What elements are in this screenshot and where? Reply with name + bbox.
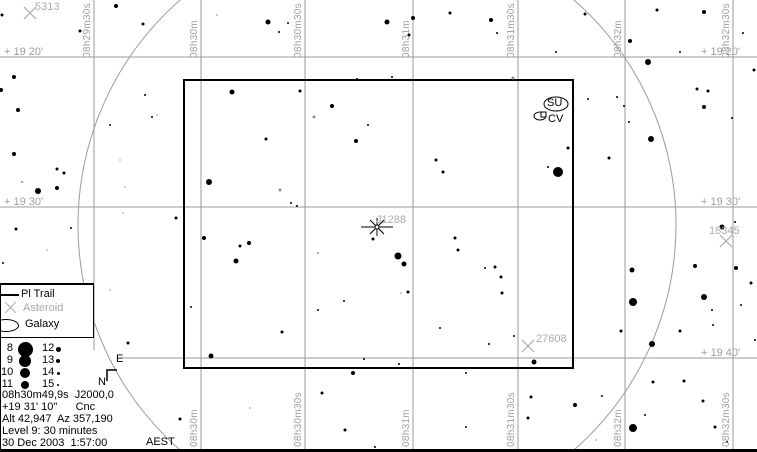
info-panel: 08h30m49,9s J2000,0+19 31' 10" CncAlt 42… bbox=[2, 389, 114, 449]
magnitude-dot-icon bbox=[57, 384, 59, 386]
asteroid-label: 18345 bbox=[709, 225, 740, 237]
magnitude-scale: 89101112131415 bbox=[0, 337, 70, 392]
compass-east-label: E bbox=[116, 353, 123, 365]
ra-label-bottom: 08h32m bbox=[613, 409, 624, 447]
magnitude-value: 12 bbox=[42, 342, 54, 354]
info-line: Alt 42,947 Az 357,190 bbox=[2, 413, 114, 425]
window-left-border bbox=[0, 283, 1, 452]
legend-label: Galaxy bbox=[25, 318, 59, 330]
magnitude-value: 13 bbox=[42, 354, 54, 366]
legend-box: Pl Trail Asteroid Galaxy bbox=[0, 283, 94, 338]
magnitude-dot-icon bbox=[21, 381, 29, 389]
center-marker-label: J1288 bbox=[376, 214, 406, 226]
ra-label-top: 08h31m30s bbox=[506, 3, 517, 58]
asteroid-icon bbox=[4, 302, 16, 314]
info-line: Level 9: 30 minutes bbox=[2, 425, 114, 437]
info-line: 30 Dec 2003 1:57:00 bbox=[2, 437, 114, 449]
magnitude-dot-icon bbox=[19, 355, 31, 367]
dec-label-right: + 19 30' bbox=[701, 196, 740, 208]
magnitude-value: 10 bbox=[1, 366, 13, 378]
ra-label-bottom: 08h32m30s bbox=[721, 392, 732, 447]
ra-label-bottom: 08h31m bbox=[401, 409, 412, 447]
magnitude-dot-icon bbox=[20, 368, 30, 378]
dec-label-left: + 19 30' bbox=[4, 196, 43, 208]
galaxy-icon bbox=[0, 319, 19, 332]
dec-label-left: + 19 20' bbox=[4, 46, 43, 58]
magnitude-value: 9 bbox=[1, 354, 13, 366]
galaxy-label: SU bbox=[547, 97, 562, 109]
dec-label-right: + 19 20' bbox=[701, 46, 740, 58]
magnitude-dot-icon bbox=[56, 359, 60, 363]
star-chart-window: 08h29m30s08h30m08h30m08h30m30s08h30m30s0… bbox=[0, 0, 757, 452]
ra-label-top: 08h30m bbox=[189, 20, 200, 58]
magnitude-value: 8 bbox=[1, 342, 13, 354]
magnitude-dot-icon bbox=[57, 372, 60, 375]
legend-label: Pl Trail bbox=[21, 288, 55, 300]
asteroid-label: 27608 bbox=[536, 333, 567, 345]
timezone-label: AEST bbox=[146, 436, 175, 448]
ra-label-top: 08h31m bbox=[401, 20, 412, 58]
asteroid-label: 5313 bbox=[35, 1, 59, 13]
magnitude-dot-icon bbox=[56, 347, 61, 352]
ra-label-bottom: 08h30m bbox=[189, 409, 200, 447]
galaxy-label: CV bbox=[548, 113, 563, 125]
info-line: 08h30m49,9s J2000,0 bbox=[2, 389, 114, 401]
ra-label-top: 08h32m bbox=[613, 20, 624, 58]
chart-labels-layer: 08h29m30s08h30m08h30m08h30m30s08h30m30s0… bbox=[0, 0, 757, 452]
ra-label-top: 08h30m30s bbox=[293, 3, 304, 58]
compass-north-label: N bbox=[98, 376, 106, 388]
legend-label: Asteroid bbox=[23, 302, 63, 314]
info-line: +19 31' 10" Cnc bbox=[2, 401, 114, 413]
ra-label-bottom: 08h30m30s bbox=[293, 392, 304, 447]
ra-label-bottom: 08h31m30s bbox=[506, 392, 517, 447]
dec-label-right: + 19 40' bbox=[701, 347, 740, 359]
ra-label-top: 08h29m30s bbox=[82, 3, 93, 58]
magnitude-value: 14 bbox=[42, 366, 54, 378]
trail-icon bbox=[1, 294, 19, 296]
